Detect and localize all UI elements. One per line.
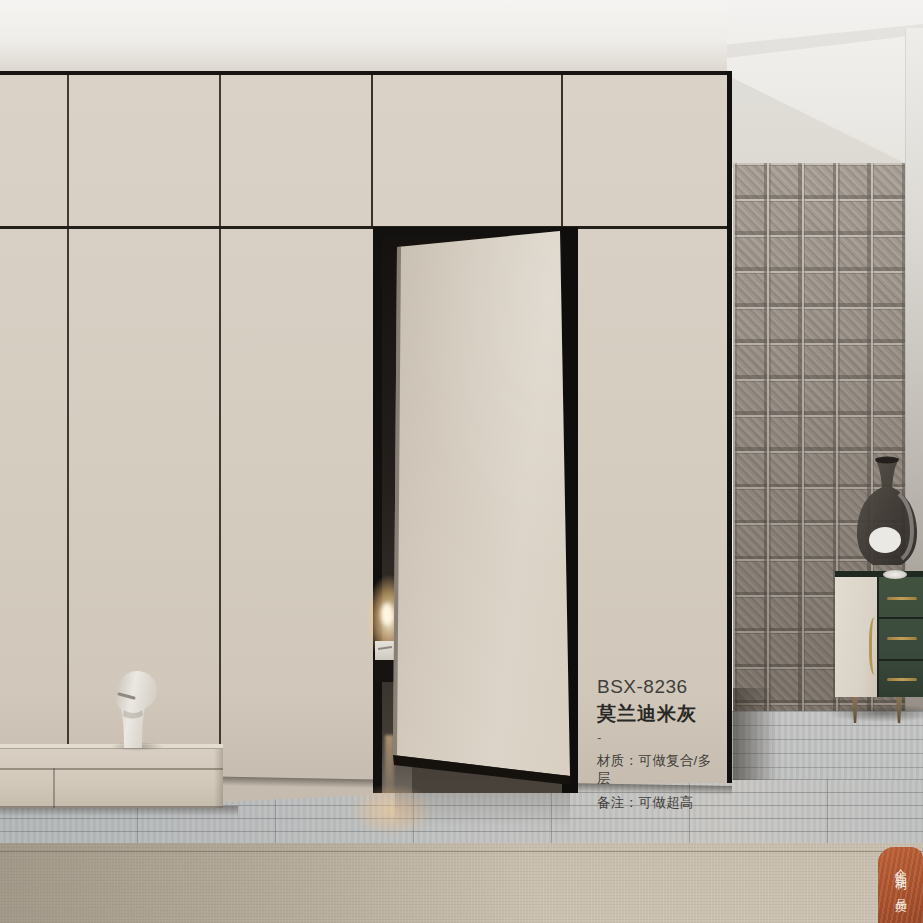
bench-side-shade	[214, 749, 223, 808]
corner-badge-text: 个性定制 品质	[892, 859, 909, 894]
sideboard-drawers	[879, 577, 923, 697]
panel-seam	[561, 75, 563, 227]
ceiling	[0, 0, 732, 74]
panel-seam	[371, 75, 373, 227]
wall-lamp	[381, 603, 393, 625]
bench-drawer-seam	[53, 768, 55, 808]
product-divider: -	[597, 733, 723, 743]
bench-shadow	[0, 806, 238, 816]
bed-base-shadow	[375, 660, 396, 682]
abstract-sculpture-decor	[108, 670, 164, 750]
ceiling-fold-line	[727, 24, 923, 58]
sideboard-leg	[895, 697, 903, 723]
drawer-handle	[887, 637, 917, 640]
door-floor-reflection	[395, 793, 570, 827]
product-material-line: 材质：可做复合/多层	[597, 752, 723, 788]
product-color-name: 莫兰迪米灰	[597, 701, 723, 727]
area-rug	[0, 843, 923, 923]
panel-seam-horizontal	[0, 226, 727, 229]
small-dish-decor	[883, 570, 907, 579]
bed-behind-door	[375, 641, 396, 660]
top-black-trim	[0, 71, 732, 75]
bench-cabinet	[0, 744, 223, 808]
drawer-handle	[887, 678, 917, 681]
interior-scene: BSX-8236 莫兰迪米灰 - 材质：可做复合/多层 备注：可做超高	[0, 0, 923, 923]
concealed-doorway	[373, 227, 578, 793]
sideboard	[835, 571, 923, 723]
glass-vase-decor	[854, 454, 920, 580]
product-model: BSX-8236	[597, 676, 723, 698]
door-panel	[373, 227, 578, 793]
door-frame-left	[373, 227, 382, 793]
drawer-seam	[879, 617, 923, 619]
product-note-line: 备注：可做超高	[597, 794, 723, 812]
rug-edge-band	[0, 843, 923, 852]
drawer-seam	[879, 659, 923, 661]
wardrobe-cast-shadow	[733, 688, 781, 780]
drawer-handle	[887, 597, 917, 600]
wardrobe-right-black-edge	[727, 71, 732, 785]
sideboard-leg	[851, 697, 859, 723]
corner-badge: 个性定制 品质	[878, 847, 923, 923]
bench-drawer-seam	[0, 768, 223, 770]
bench-front	[0, 749, 223, 808]
product-card: BSX-8236 莫兰迪米灰 - 材质：可做复合/多层 备注：可做超高	[597, 676, 723, 812]
ceiling-right	[727, 0, 923, 168]
